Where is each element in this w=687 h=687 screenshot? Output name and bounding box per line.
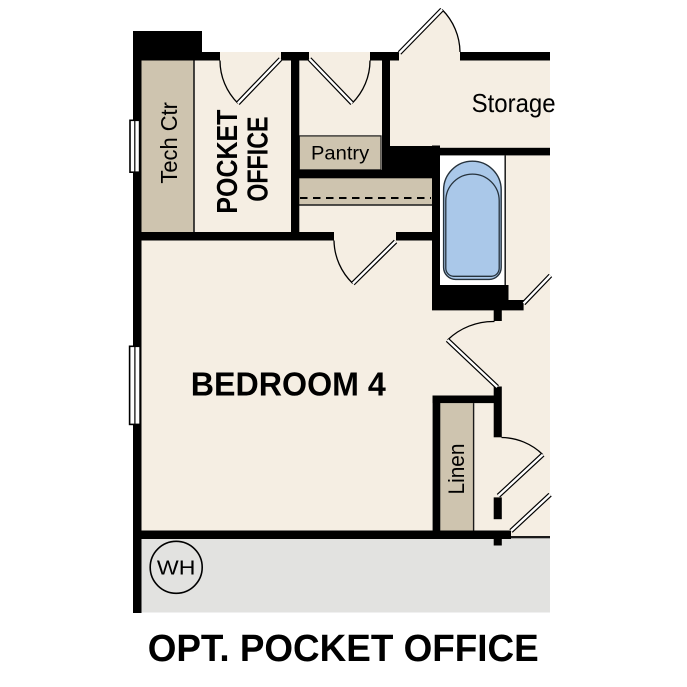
svg-text:BEDROOM 4: BEDROOM 4 <box>191 365 387 402</box>
svg-text:Tech Ctr: Tech Ctr <box>156 102 182 184</box>
svg-text:OPT. POCKET OFFICE: OPT. POCKET OFFICE <box>148 628 539 670</box>
svg-text:WH: WH <box>157 557 196 579</box>
svg-text:Linen: Linen <box>444 444 469 495</box>
svg-text:POCKET: POCKET <box>212 109 244 213</box>
svg-text:Storage: Storage <box>472 88 556 118</box>
svg-text:Pantry: Pantry <box>311 144 370 165</box>
svg-text:OFFICE: OFFICE <box>242 116 274 201</box>
